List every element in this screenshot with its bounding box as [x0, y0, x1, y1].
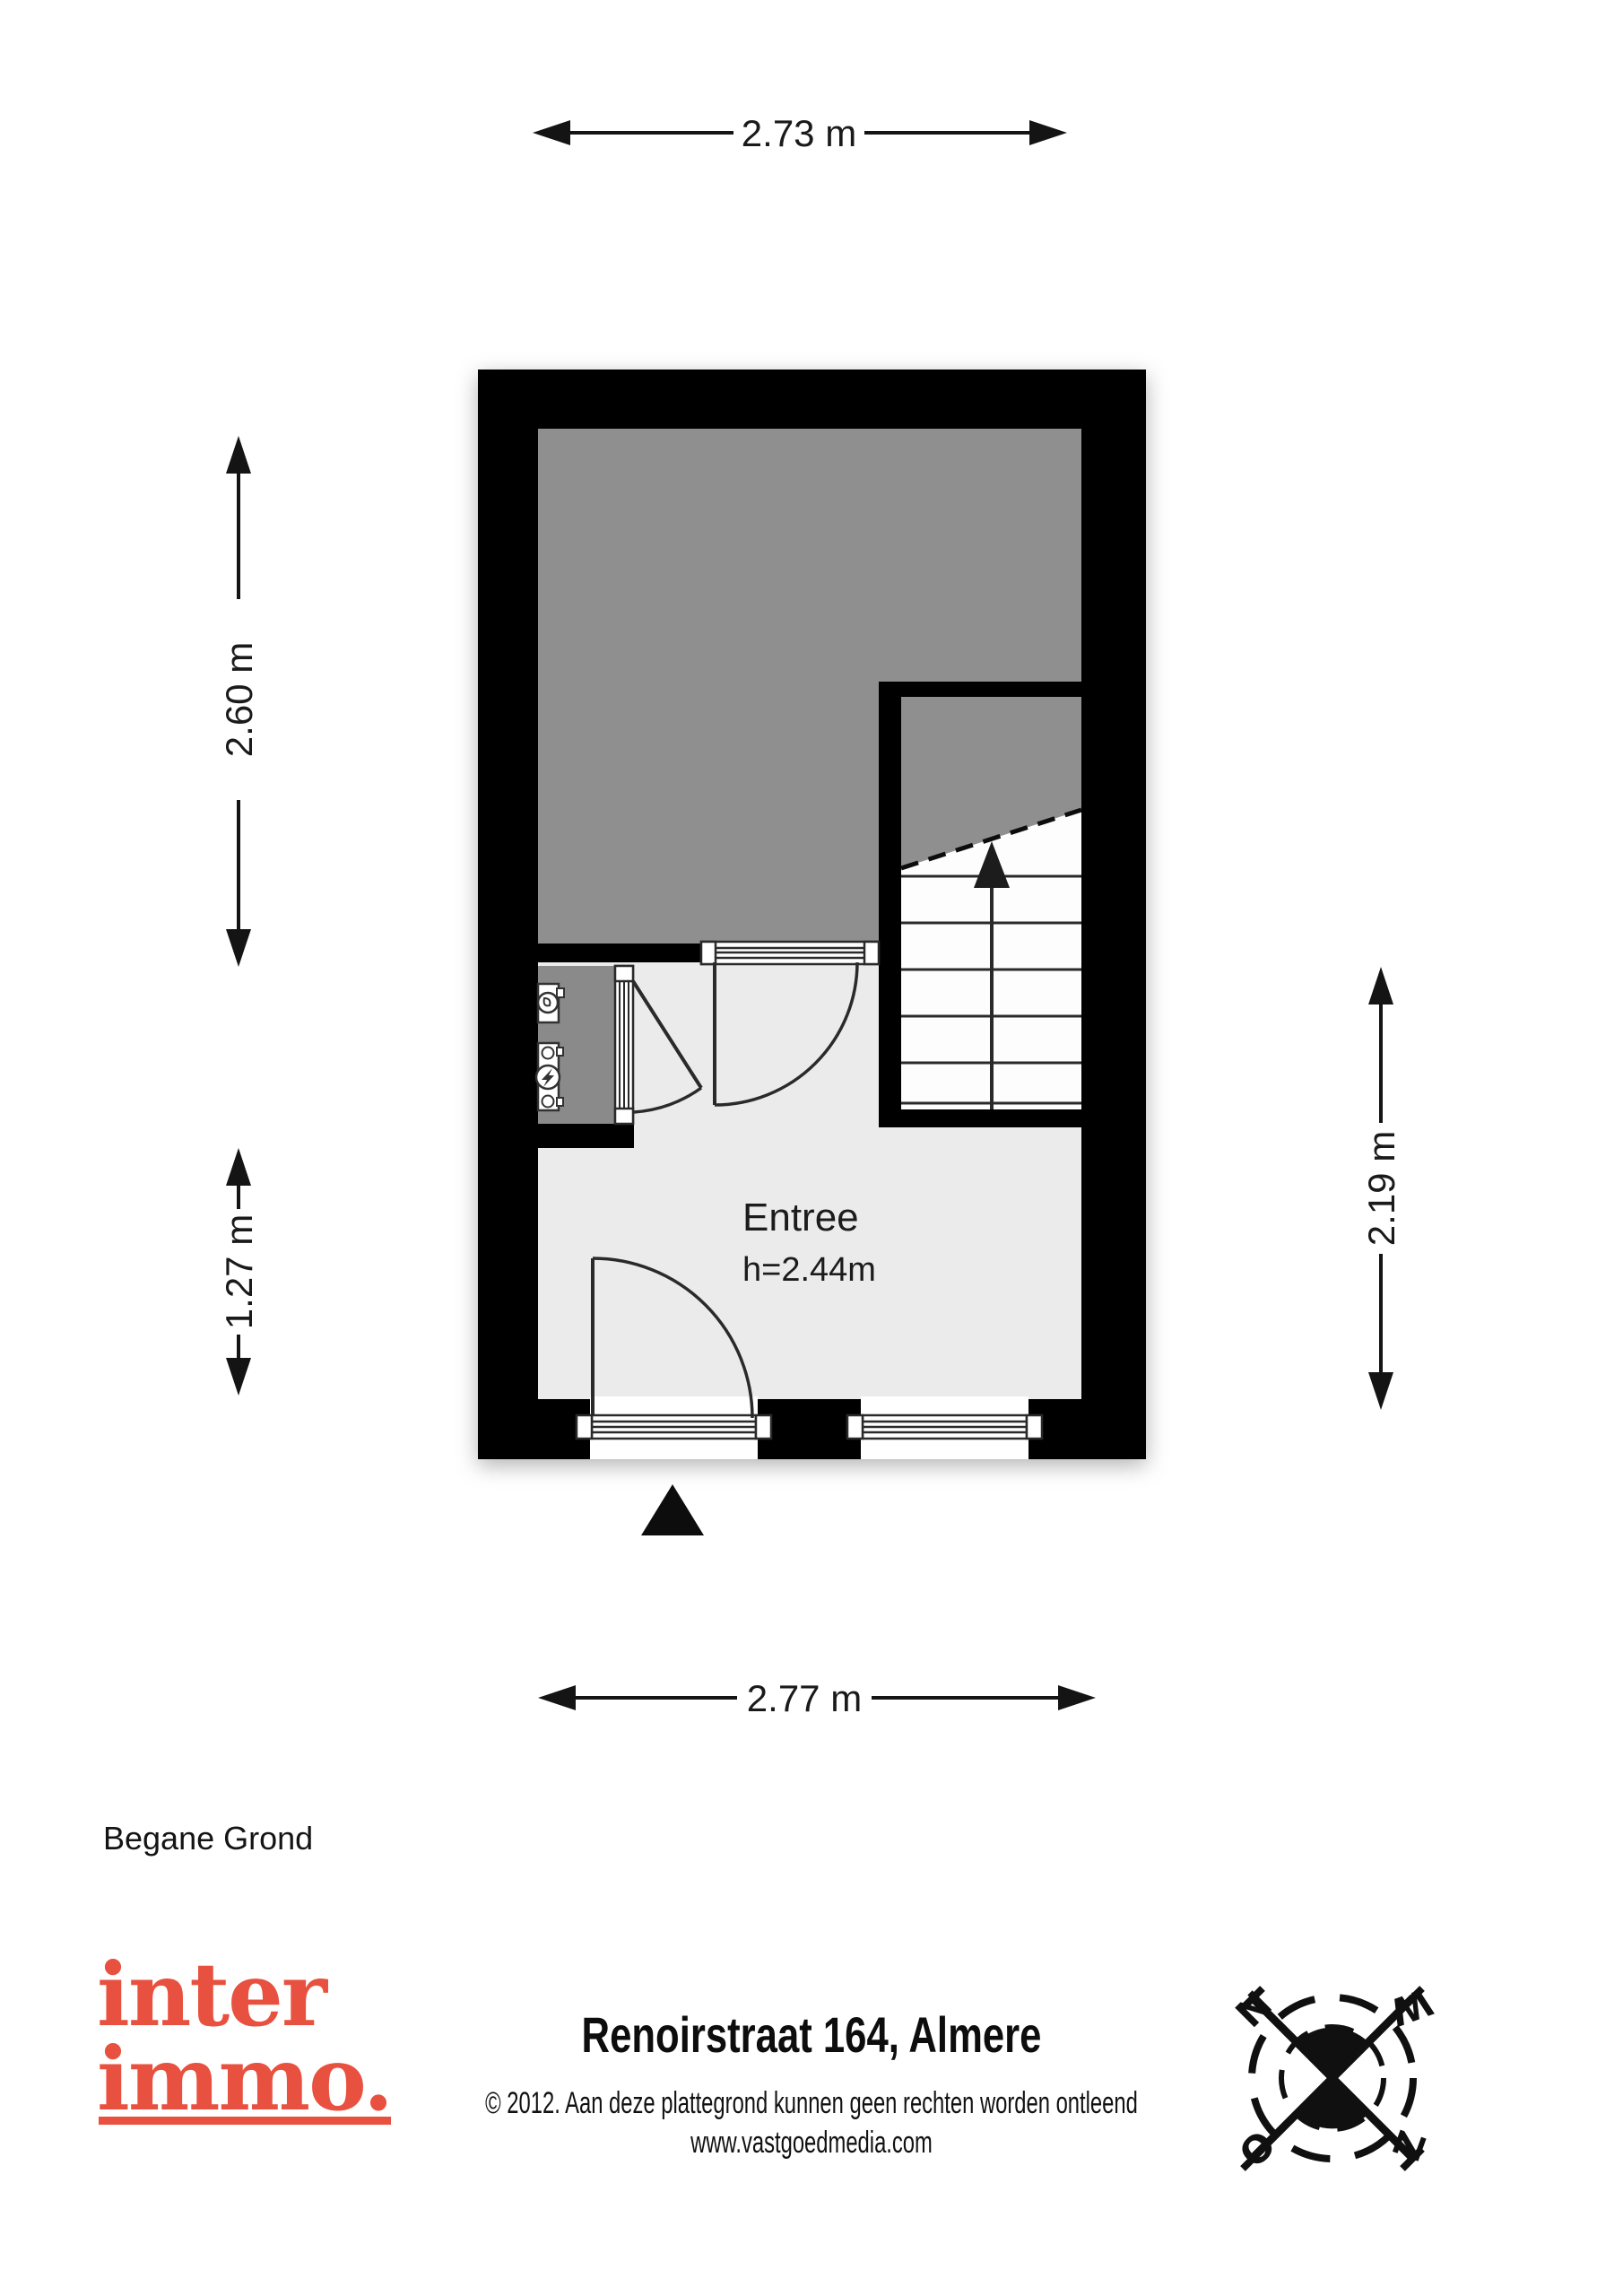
arrowhead-icon: [1058, 1685, 1096, 1710]
copyright-line2: www.vastgoedmedia.com: [690, 2126, 933, 2160]
compass-rose-icon: N W O Z: [1228, 1979, 1438, 2177]
page-title: Renoirstraat 164, Almere: [582, 2007, 1042, 2063]
entrance-marker-icon: [641, 1484, 704, 1535]
electric-meter: [536, 1043, 563, 1110]
logo: inter immo.: [97, 1944, 392, 2130]
closet-wall-bottom: [538, 1124, 634, 1148]
arrowhead-icon: [226, 1148, 251, 1186]
front-window-frame: [847, 1415, 1042, 1439]
logo-line2: immo.: [97, 2028, 392, 2130]
front-door-frame: [577, 1415, 771, 1439]
floorplan-canvas: Entree h=2.44m 2.73 m 2.60 m 1.27 m 2.19…: [0, 0, 1623, 2296]
floor-name-label: Begane Grond: [103, 1820, 313, 1857]
room-name-label: Entree: [742, 1196, 859, 1239]
compass-label-n: N: [1228, 1983, 1281, 2037]
arrowhead-icon: [538, 1685, 576, 1710]
arrowhead-icon: [226, 436, 251, 474]
dimension-right-label: 2.19 m: [1360, 1131, 1402, 1246]
compass-label-z: Z: [1384, 2125, 1435, 2165]
dimension-bottom-label: 2.77 m: [747, 1677, 862, 1719]
inner-door-frame: [701, 942, 879, 964]
dimension-left-lower-label: 1.27 m: [218, 1214, 260, 1329]
closet-door-frame: [615, 966, 633, 1124]
staircase: [901, 697, 1081, 1109]
logo-underline: [99, 2117, 391, 2125]
arrowhead-icon: [1368, 1372, 1393, 1410]
interior-wall: [538, 944, 701, 962]
stair-wall-left: [879, 682, 901, 1127]
arrowhead-icon: [533, 120, 570, 145]
room-height-label: h=2.44m: [742, 1251, 876, 1289]
compass-label-w: W: [1384, 1979, 1438, 2035]
arrowhead-icon: [1368, 967, 1393, 1004]
floorplan-page: Entree h=2.44m 2.73 m 2.60 m 1.27 m 2.19…: [0, 0, 1623, 2296]
arrowhead-icon: [1029, 120, 1067, 145]
stair-wall-bottom: [879, 1109, 1081, 1127]
arrowhead-icon: [226, 929, 251, 967]
stair-wall-top: [879, 682, 1081, 697]
dimension-left-upper-label: 2.60 m: [218, 642, 260, 757]
copyright-line1: © 2012. Aan deze plattegrond kunnen geen…: [485, 2086, 1138, 2120]
building: [478, 370, 1146, 1459]
arrowhead-icon: [226, 1358, 251, 1396]
dimension-top-label: 2.73 m: [742, 112, 856, 154]
